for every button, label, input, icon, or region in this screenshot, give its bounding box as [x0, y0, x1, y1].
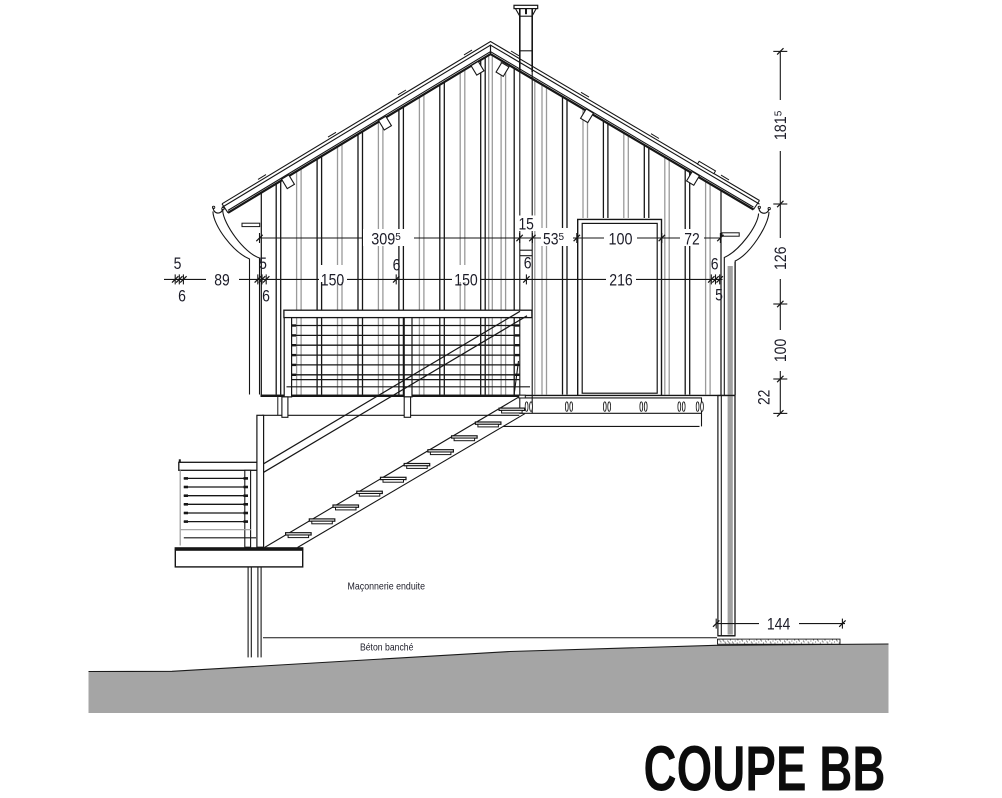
svg-text:150: 150 — [454, 272, 478, 290]
svg-text:Béton banché: Béton banché — [360, 643, 414, 654]
svg-text:6: 6 — [524, 254, 532, 272]
svg-text:15: 15 — [518, 215, 534, 233]
svg-text:100: 100 — [772, 339, 790, 363]
svg-text:5: 5 — [259, 255, 267, 273]
svg-text:216: 216 — [609, 272, 633, 290]
svg-text:5: 5 — [715, 287, 723, 305]
svg-text:144: 144 — [767, 615, 791, 633]
svg-text:6: 6 — [393, 257, 401, 275]
svg-text:6: 6 — [262, 288, 270, 306]
svg-text:Maçonnerie enduite: Maçonnerie enduite — [348, 582, 426, 593]
svg-text:100: 100 — [609, 230, 633, 248]
svg-text:150: 150 — [321, 272, 345, 290]
svg-text:6: 6 — [178, 288, 186, 306]
svg-text:89: 89 — [214, 272, 230, 290]
svg-text:6: 6 — [711, 256, 719, 274]
svg-text:126: 126 — [772, 247, 790, 271]
svg-text:COUPE BB: COUPE BB — [644, 733, 886, 798]
svg-text:22: 22 — [756, 390, 774, 406]
svg-text:72: 72 — [684, 230, 700, 248]
svg-text:5: 5 — [174, 255, 182, 273]
